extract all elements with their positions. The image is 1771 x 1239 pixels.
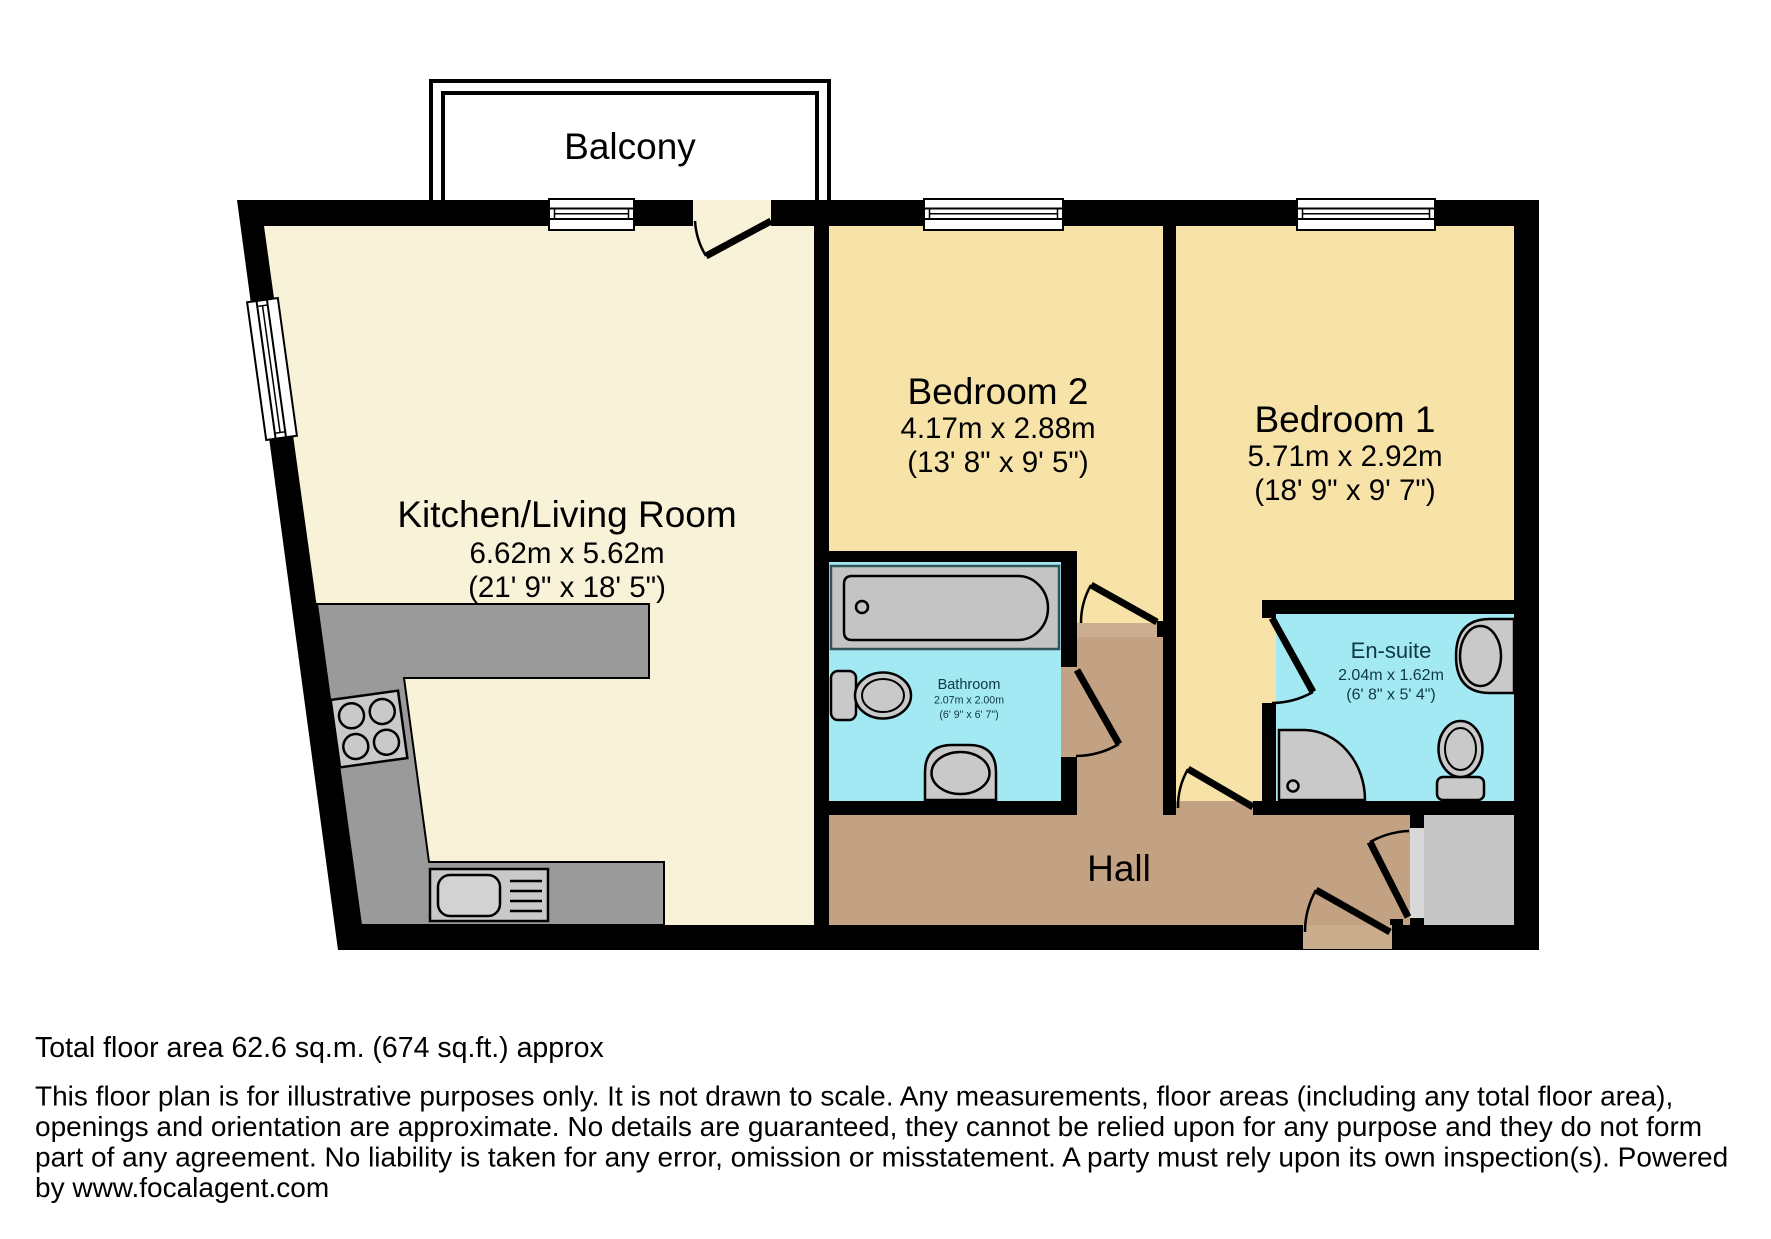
svg-text:2.04m x 1.62m: 2.04m x 1.62m [1338,667,1444,684]
svg-text:Bedroom 1: Bedroom 1 [1255,399,1436,440]
svg-text:Bedroom 2: Bedroom 2 [908,371,1089,412]
svg-text:(6' 9" x 6' 7"): (6' 9" x 6' 7") [939,709,998,721]
svg-text:5.71m x 2.92m: 5.71m x 2.92m [1247,440,1442,473]
svg-text:Hall: Hall [1087,848,1151,889]
svg-text:(13' 8" x 9' 5"): (13' 8" x 9' 5") [907,446,1088,479]
svg-text:(18' 9" x 9' 7"): (18' 9" x 9' 7") [1254,474,1435,507]
svg-text:by www.focalagent.com: by www.focalagent.com [35,1172,329,1203]
svg-text:This floor plan is for illustr: This floor plan is for illustrative purp… [35,1081,1673,1112]
svg-text:Bathroom: Bathroom [938,677,1001,693]
svg-text:openings and orientation are a: openings and orientation are approximate… [35,1111,1702,1142]
svg-text:(6' 8" x 5' 4"): (6' 8" x 5' 4") [1346,687,1436,704]
svg-text:Total floor area 62.6 sq.m. (6: Total floor area 62.6 sq.m. (674 sq.ft.)… [35,1032,604,1064]
svg-text:6.62m x 5.62m: 6.62m x 5.62m [469,537,664,570]
svg-text:Balcony: Balcony [564,126,696,167]
svg-text:4.17m x 2.88m: 4.17m x 2.88m [900,412,1095,445]
svg-text:(21' 9" x 18' 5"): (21' 9" x 18' 5") [468,571,666,604]
svg-text:part of any agreement. No liab: part of any agreement. No liability is t… [35,1142,1728,1173]
svg-text:En-suite: En-suite [1351,638,1432,663]
svg-text:Kitchen/Living Room: Kitchen/Living Room [397,494,736,535]
svg-text:2.07m x 2.00m: 2.07m x 2.00m [934,695,1004,707]
